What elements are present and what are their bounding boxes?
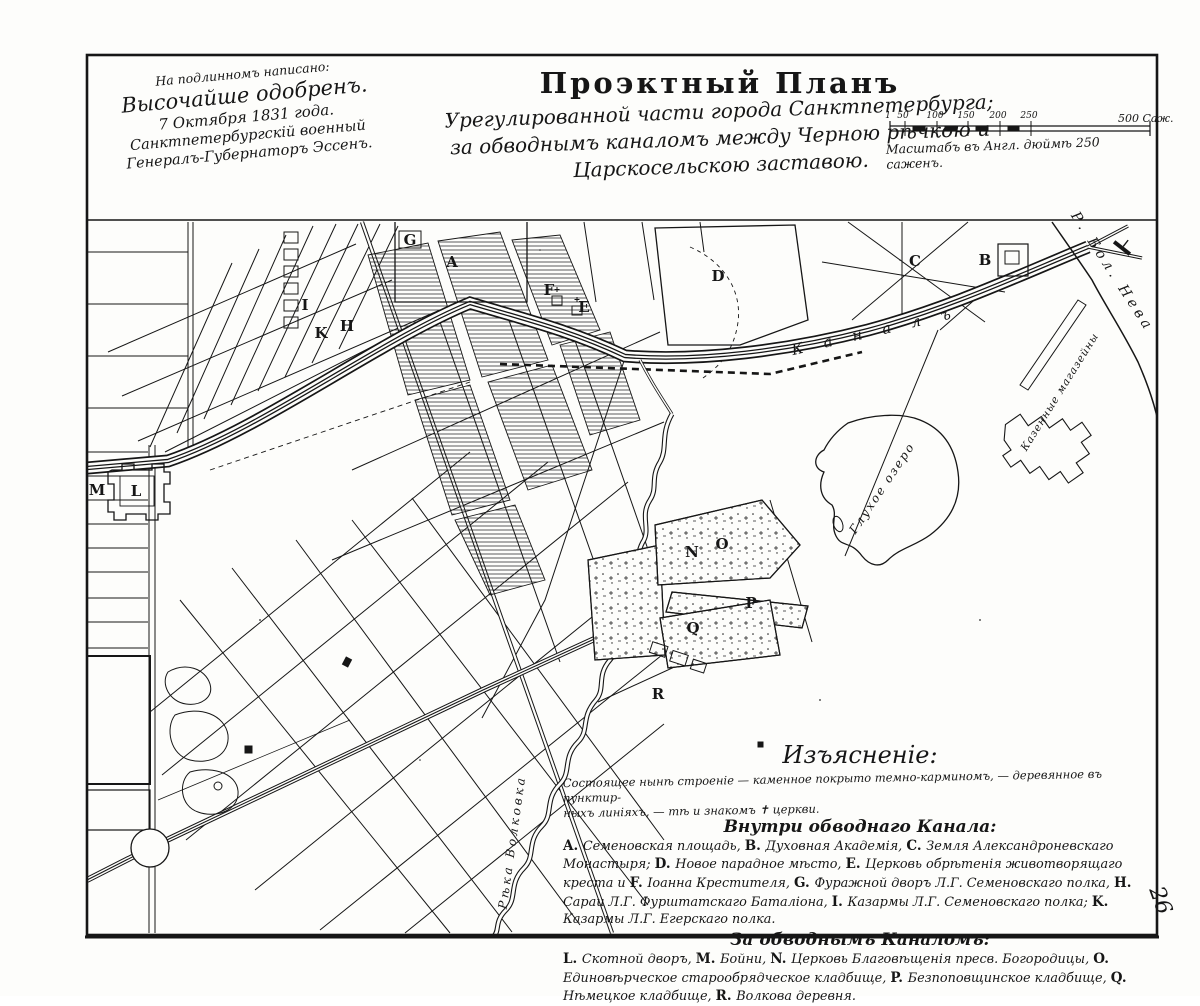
- legend-intro: Состоящее нынѣ строеніе — каменное покры…: [563, 766, 1158, 821]
- map-marker-H: H: [340, 319, 354, 334]
- legend-entry-letter: M.: [696, 951, 720, 967]
- map-marker-P: P: [745, 596, 756, 611]
- legend-entry-text: Бойни,: [720, 952, 770, 967]
- map-marker-R: R: [652, 687, 664, 702]
- legend-section-heading: Внутри обводнаго Канала:: [563, 817, 1157, 837]
- map-marker-A: A: [446, 255, 458, 270]
- hatched-blocks: [368, 232, 640, 595]
- legend-entry-letter: I.: [832, 894, 848, 910]
- map-marker-M: M: [89, 483, 106, 498]
- legend-entry-letter: Q.: [1111, 970, 1127, 986]
- legend-entry-letter: P.: [890, 970, 907, 986]
- legend-entries: L. Скотной дворъ, M. Бойни, N. Церковь Б…: [563, 950, 1157, 1006]
- scale-tick-label: 1: [885, 111, 891, 121]
- star-plaza: [131, 829, 169, 867]
- legend-entries: A. Семеновская площадь, B. Духовная Акад…: [563, 837, 1157, 929]
- legend-entry-text: Нѣмецкое кладбище,: [563, 989, 716, 1004]
- legend-title: Изъясненіе:: [563, 741, 1157, 769]
- legend-entry-text: Единовѣрческое старообрядческое кладбище…: [563, 971, 890, 986]
- legend-entry-letter: A.: [563, 838, 583, 854]
- legend-entry-letter: K.: [1092, 894, 1108, 910]
- legend-entry-letter: O.: [1093, 951, 1109, 967]
- legend-entry-text: Казармы Л.Г. Семеновскаго полка;: [848, 895, 1092, 910]
- map-marker-D: D: [711, 269, 724, 284]
- gardens: [87, 656, 350, 830]
- map-marker-N: N: [685, 545, 699, 560]
- legend-entry-text: Скотной дворъ,: [582, 952, 696, 967]
- map-marker-O: O: [715, 537, 728, 552]
- scale-end-label: 500 Саж.: [1118, 112, 1173, 125]
- scale-tick-label: 50: [897, 111, 908, 121]
- legend-entry-letter: L.: [563, 951, 582, 967]
- map-marker-G: G: [404, 233, 417, 248]
- legend-sections: Внутри обводнаго Канала:A. Семеновская п…: [563, 817, 1157, 1006]
- legend-entry-text: Волкова деревня.: [736, 989, 856, 1004]
- legend-entry-text: Духовная Академія,: [766, 839, 907, 854]
- legend-entry-letter: N.: [770, 951, 791, 967]
- legend-section-heading: За обводнымъ Каналомъ:: [563, 930, 1157, 950]
- map-marker-Q: Q: [686, 621, 699, 636]
- cemeteries: [588, 500, 808, 668]
- map-marker-L: L: [131, 484, 142, 499]
- legend-entry-text: Іоанна Крестителя,: [647, 876, 794, 891]
- legend-entry-text: Новое парадное мѣсто,: [675, 857, 845, 872]
- legend-entry-letter: G.: [794, 875, 814, 891]
- map-marker-E: E: [578, 300, 589, 315]
- legend-entry-text: Семеновская площадь,: [583, 839, 745, 854]
- legend-entry-letter: D.: [655, 856, 676, 872]
- scale-tick-label: 150: [957, 111, 974, 121]
- legend-entry-letter: F.: [630, 875, 648, 891]
- legend-entry-text: Фуражной дворъ Л.Г. Семеновскаго полка,: [814, 876, 1114, 891]
- map-marker-B: B: [979, 253, 992, 268]
- scale-tick-label: 200: [989, 111, 1006, 121]
- legend-entry-text: Казармы Л.Г. Егерскаго полка.: [563, 912, 775, 927]
- legend-entry-letter: R.: [716, 988, 737, 1004]
- map-marker-K: K: [314, 326, 327, 341]
- legend-entry-letter: H.: [1114, 875, 1131, 891]
- map-marker-C: C: [909, 254, 921, 269]
- legend-entry-text: Церковь Благовѣщенія пресв. Богородицы,: [791, 952, 1093, 967]
- legend-entry-letter: C.: [906, 838, 926, 854]
- scale-tick-label: 100: [926, 111, 943, 121]
- legend-entry-letter: B.: [745, 838, 766, 854]
- legend-entry-text: Безпоповщинское кладбище,: [908, 971, 1111, 986]
- map-legend: Изъясненіе: Состоящее нынѣ строеніе — ка…: [563, 741, 1157, 1006]
- scanned-map-sheet: { "palette": {"paper":"#fdfdfb","ink":"#…: [0, 0, 1200, 996]
- legend-entry-text: Сараи Л.Г. Фурштатскаго Баталіона,: [563, 895, 832, 910]
- map-marker-I: I: [301, 298, 308, 313]
- scale-tick-label: 250: [1020, 111, 1037, 121]
- map-marker-F: F: [544, 283, 555, 298]
- legend-entry-letter: E.: [846, 856, 866, 872]
